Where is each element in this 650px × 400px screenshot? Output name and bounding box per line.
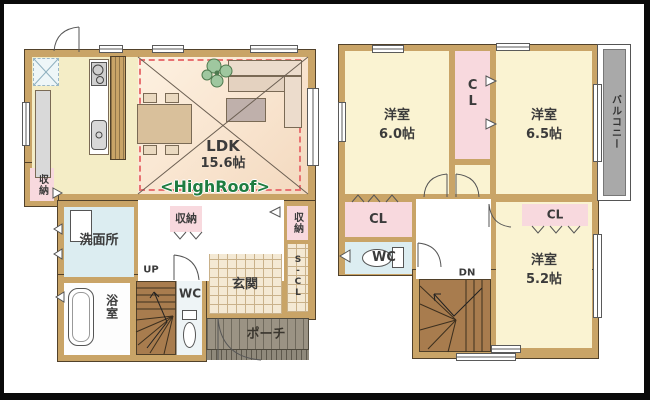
room-b-size: 6.5帖 — [526, 128, 562, 142]
window — [372, 45, 404, 53]
sofa-back — [228, 60, 302, 76]
window — [99, 45, 123, 53]
room-a-size: 6.0帖 — [379, 128, 415, 142]
closet-a-label: CL — [465, 78, 479, 110]
sofa-seat — [228, 76, 288, 92]
balcony-label: バルコニー — [610, 95, 621, 150]
f2-hall-floor — [416, 199, 491, 279]
f1-staircase — [136, 281, 176, 355]
window — [250, 45, 298, 53]
window — [338, 102, 346, 142]
dining-table — [137, 104, 192, 144]
storage-left-label: 収納 — [37, 174, 48, 196]
entrance-label: 玄関 — [232, 278, 258, 292]
room-c-size: 5.2帖 — [526, 273, 562, 287]
window — [593, 234, 602, 318]
bathtub-inner — [72, 292, 90, 342]
stairs-down-label: DN — [459, 268, 476, 279]
toilet-tank — [182, 310, 197, 320]
window — [307, 88, 319, 166]
f2-closet-a-vestibule — [455, 165, 490, 194]
window — [22, 102, 30, 146]
refrigerator-space-icon — [33, 58, 59, 86]
closet-c-label: CL — [547, 208, 563, 221]
stairs-up-label: UP — [143, 265, 158, 276]
high-roof-label: <HighRoof> — [160, 178, 270, 196]
storage-right-label: 収納 — [292, 212, 303, 234]
dining-chair — [165, 145, 179, 155]
sink-icon — [91, 120, 107, 150]
window — [593, 84, 602, 162]
window — [152, 45, 184, 53]
stove-icon — [91, 62, 107, 86]
coffee-table — [226, 98, 266, 122]
bathtub-icon — [68, 288, 94, 346]
window — [491, 345, 521, 353]
washroom-label: 洗面所 — [79, 234, 118, 248]
toilet-bowl-icon — [183, 322, 196, 348]
dining-chair — [165, 93, 179, 103]
floor-plan-canvas: LDK 15.6帖 <HighRoof> 収納 洗面所 浴室 UP 収納 WC … — [0, 0, 650, 400]
room-b-label: 洋室 — [531, 109, 557, 123]
ldk-label: LDK — [206, 138, 240, 155]
closet-b-label: CL — [369, 213, 387, 227]
storage-hall-label: 収納 — [175, 213, 197, 225]
porch-label: ポーチ — [246, 328, 285, 342]
room-c-label: 洋室 — [531, 254, 557, 268]
window — [496, 43, 530, 51]
bathroom-label: 浴室 — [104, 294, 117, 320]
shoe-closet-label: S-CL — [292, 255, 302, 299]
wc1-label: WC — [179, 287, 201, 300]
kitchen-side-counter — [35, 90, 51, 178]
sofa-side — [284, 76, 302, 128]
f2-staircase — [419, 279, 491, 352]
dining-chair — [143, 93, 157, 103]
ldk-size-label: 15.6帖 — [200, 157, 245, 171]
stair-landing-step — [456, 353, 516, 361]
kitchen-counter-wall — [110, 56, 126, 160]
wc2-label: WC — [372, 251, 396, 265]
dining-chair — [143, 145, 157, 155]
room-a-label: 洋室 — [384, 109, 410, 123]
f1-porch-step — [206, 349, 309, 360]
